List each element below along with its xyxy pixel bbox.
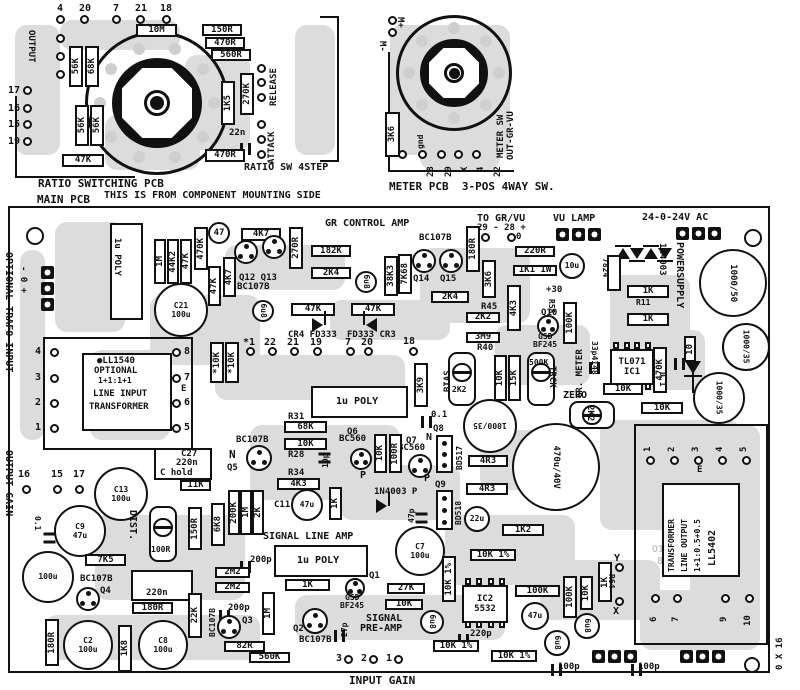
resistor-10: 10 xyxy=(684,336,696,362)
resistor-6k8: 6K8 xyxy=(211,503,225,546)
label-q8: Q8 xyxy=(433,425,444,434)
label-q1: Q1 xyxy=(369,572,380,581)
label-bc107b: BC107B xyxy=(299,636,332,645)
copper-pad xyxy=(480,35,492,47)
resistor-value: 56K xyxy=(78,117,87,133)
transistor-lead xyxy=(244,244,249,249)
copper-pad xyxy=(105,131,117,143)
zener-bar xyxy=(684,375,702,377)
diode-icon xyxy=(644,248,658,259)
connector xyxy=(592,650,637,663)
resistor-1m: 1M xyxy=(262,592,275,635)
resistor-44k2: 44K2 xyxy=(167,239,179,284)
label-q15: Q15 xyxy=(440,275,456,284)
diode-icon xyxy=(376,499,387,513)
capacitor-label: 1000/35 xyxy=(473,421,507,430)
solder-pad xyxy=(80,15,89,24)
solder-pad xyxy=(646,456,655,465)
caption-mounting-side: THIS IS FROM COMPONENT MOUNTING SIDE xyxy=(104,191,321,201)
caption-ratio-board: RATIO SWITCHING PCB xyxy=(38,178,164,189)
capacitor-100u: 100u xyxy=(22,551,74,603)
resistor-1k: 1K xyxy=(329,487,342,520)
copper-pad xyxy=(448,22,460,34)
label-dist: DIST. xyxy=(127,510,137,540)
label-r64: R64 xyxy=(607,574,615,588)
capacitor-1000-35: 1000/35 xyxy=(722,323,770,371)
caption-main-pcb: MAIN PCB xyxy=(37,194,90,205)
label-4: 4 xyxy=(57,4,63,14)
ic-pin xyxy=(634,342,640,349)
film-cap-icon xyxy=(416,513,428,524)
resistor-220r: 220R xyxy=(515,246,555,257)
solder-pad xyxy=(257,64,266,73)
ic-pin xyxy=(488,621,494,628)
resistor-value: 10K xyxy=(297,440,313,449)
resistor-100k: 100K xyxy=(563,302,577,344)
capacitor-label: C13100u xyxy=(111,485,130,503)
label-4: 4 xyxy=(35,347,41,357)
label-1: 1 xyxy=(386,654,392,664)
capacitor-6u8: 6u8 xyxy=(420,610,444,634)
label-release: RELEASE xyxy=(270,68,279,106)
solder-pad xyxy=(694,456,703,465)
resistor-value: 3K9 xyxy=(417,377,426,393)
resistor-value: 10 xyxy=(686,344,695,355)
connector-pin xyxy=(692,227,705,240)
solder-pad xyxy=(53,485,62,494)
silkscreen-line xyxy=(320,160,339,162)
label-bd518: BD518 xyxy=(455,501,463,525)
label-ratio-switch: RATIO SW 4STEP xyxy=(244,163,328,173)
capacitor-label: 6u8 xyxy=(427,615,436,629)
solder-pad xyxy=(172,348,181,357)
copper-pad xyxy=(197,131,209,143)
label-optional: OPTIONAL xyxy=(94,367,137,376)
resistor-value: 220R xyxy=(524,247,546,256)
connector xyxy=(676,227,721,240)
trimmer-slot xyxy=(155,526,170,529)
transistor-lead xyxy=(443,263,448,268)
copper-pad xyxy=(403,67,415,79)
transistor-lead xyxy=(238,254,243,259)
resistor-value: 22K xyxy=(191,607,200,623)
solder-pad xyxy=(721,594,730,603)
resistor-value: 1K5 xyxy=(224,95,233,111)
resistor-value: 100K xyxy=(566,312,575,334)
label-20: 20 xyxy=(79,4,91,14)
resistor-value: 27K xyxy=(398,584,414,593)
resistor-1k: 1K xyxy=(627,313,669,326)
connector xyxy=(680,650,725,663)
capacitor-6u8: 6u8 xyxy=(544,630,570,656)
label-30: +30 xyxy=(546,286,562,295)
resistor-value: 1K xyxy=(643,287,654,296)
label-bc560: BC560 xyxy=(398,444,425,453)
ic-pin xyxy=(499,578,505,585)
connector-pin xyxy=(708,227,721,240)
transistor xyxy=(302,608,328,634)
pcb-layout-image: MAIN PCB THIS IS FROM COMPONENT MOUNTING… xyxy=(0,0,800,690)
copper-trace xyxy=(295,25,335,155)
solder-pad xyxy=(369,655,378,664)
resistor-value: 6K8 xyxy=(214,516,223,532)
solder-pad xyxy=(162,15,171,24)
label-6: 6 xyxy=(650,617,659,622)
solder-pad xyxy=(136,15,145,24)
resistor-value: 4K3 xyxy=(510,300,519,316)
capacitor-22u: 22u xyxy=(464,506,490,532)
solder-pad xyxy=(50,348,59,357)
resistor-value: 47K xyxy=(210,278,219,294)
transistor-lead xyxy=(359,452,364,457)
resistor-value: 100K xyxy=(566,586,575,608)
capacitor-10u: 10u xyxy=(559,253,585,279)
capacitor-label: 6u8 xyxy=(582,619,591,633)
label-ll1540: ●LL1540 xyxy=(97,357,135,366)
capacitor-6u8: 6u8 xyxy=(252,300,274,322)
solder-pad xyxy=(651,594,660,603)
label-2: 2 xyxy=(668,447,677,452)
resistor-56k: 56K xyxy=(75,105,89,146)
solder-pad xyxy=(22,485,31,494)
resistor-value: 1M xyxy=(264,608,273,619)
resistor-10k-1: 10K 1% xyxy=(491,650,537,662)
label-19: 19 xyxy=(8,137,20,147)
solder-pad xyxy=(257,78,266,87)
solder-pad xyxy=(454,150,463,159)
solder-pad xyxy=(364,347,373,356)
capacitor-label: 1000/35 xyxy=(714,381,723,415)
label-q3: Q3 xyxy=(242,617,253,626)
resistor-100r: 100R xyxy=(389,434,402,473)
capacitor-label: C7100u xyxy=(410,542,429,560)
resistor-22k: 22K xyxy=(188,593,202,638)
ic-pin xyxy=(645,383,651,390)
transistor-lead xyxy=(80,601,85,606)
resistor-270r: 270R xyxy=(289,227,303,269)
label-200p: 200p xyxy=(250,556,272,565)
label-9: 9 xyxy=(720,617,729,622)
resistor-10k: 10K xyxy=(603,383,643,395)
resistor-value: 4K3 xyxy=(290,480,306,489)
label-c-hold: C hold xyxy=(160,469,193,478)
label-15: 15 xyxy=(51,470,63,480)
resistor-value: 47K xyxy=(305,305,321,314)
label-220n: 220n xyxy=(176,459,198,468)
resistor-27k: 27K xyxy=(387,583,425,594)
resistor-value: 100R xyxy=(391,443,400,465)
label-6: 6 xyxy=(184,398,190,408)
transistor-lead xyxy=(442,496,447,501)
diode-bar xyxy=(324,311,326,325)
resistor-value: 3M9 xyxy=(475,333,491,342)
label-1n4003-p: 1N4003 P xyxy=(374,488,417,497)
label-7: 7 xyxy=(672,617,681,622)
capacitor-1000-35: 1000/35 xyxy=(693,372,745,424)
resistor-56k: 56K xyxy=(90,105,104,146)
resistor-value: 470K xyxy=(197,238,206,260)
solder-pad xyxy=(56,34,65,43)
capacitor-1000-35: 1000/35 xyxy=(463,399,517,453)
label-bc560: BC560 xyxy=(339,435,366,444)
label-bd517: BD517 xyxy=(456,446,464,470)
ic-pin xyxy=(476,578,482,585)
label-bc107b: BC107B xyxy=(237,283,270,292)
resistor-value: 1K8 xyxy=(121,640,130,656)
label-2: 2 xyxy=(35,398,41,408)
resistor-value: 4R3 xyxy=(480,457,496,466)
solder-pad xyxy=(172,374,181,383)
label-10: 10 xyxy=(744,615,753,626)
resistor-1k: 1K xyxy=(627,285,669,298)
solder-pad xyxy=(507,233,516,242)
resistor-10k-1: 10K 1% xyxy=(470,549,516,561)
resistor-value: 180R xyxy=(469,238,478,260)
ic-pin xyxy=(613,342,619,349)
label-7: 7 xyxy=(184,373,190,383)
resistor-150r: 150R xyxy=(202,24,242,36)
transistor-lead xyxy=(313,613,318,618)
solder-pad xyxy=(257,93,266,102)
label-29: 29 xyxy=(445,166,454,177)
resistor-4r3: 4R3 xyxy=(468,455,508,467)
resistor-10k: 10K xyxy=(385,599,423,610)
label-1u-poly: 1u POLY xyxy=(112,238,121,276)
resistor-value: 180R xyxy=(48,632,57,654)
ic-pin xyxy=(624,342,630,349)
resistor-value: 47K xyxy=(182,253,191,269)
solder-pad xyxy=(23,120,32,129)
label-bc107b: BC107B xyxy=(419,234,452,243)
label-16: 16 xyxy=(18,470,30,480)
label-1-1-1-1: 1+1:1+1 xyxy=(98,377,132,385)
connector-pin xyxy=(41,282,54,295)
copper-pad xyxy=(493,67,505,79)
label-500k: 500K xyxy=(529,359,548,367)
resistor-2m2: 2M2 xyxy=(215,567,250,578)
solder-pad xyxy=(388,16,397,25)
film-cap-icon xyxy=(319,453,331,464)
transistor-lead xyxy=(251,460,256,465)
label-3: 3 xyxy=(336,654,342,664)
resistor-1m: 1M xyxy=(240,490,252,535)
connector xyxy=(41,266,54,311)
label-x: X xyxy=(461,167,470,172)
resistor-value: 1K xyxy=(302,581,313,590)
resistor-4k3: 4K3 xyxy=(507,285,521,331)
resistor-560k: 560K xyxy=(249,652,290,663)
resistor-11k: 11K xyxy=(180,480,211,491)
capacitor-label: 470u/40V xyxy=(551,445,561,488)
diode-bar xyxy=(629,260,645,262)
label-4: 4 xyxy=(477,167,486,172)
resistor-value: 10K xyxy=(496,370,505,386)
resistor-value: 100K xyxy=(527,587,549,596)
label-m: M- xyxy=(377,41,386,52)
label-q14: Q14 xyxy=(413,275,429,284)
diode-bar xyxy=(363,311,365,325)
resistor-value: 10K xyxy=(615,385,631,394)
resistor-value: 150R xyxy=(211,26,233,35)
resistor-value: 7K68 xyxy=(401,263,410,285)
label-c11: C11 xyxy=(274,501,290,510)
label-transformer: TRANSFORMER xyxy=(668,519,676,572)
label-17: 17 xyxy=(8,86,20,96)
label-22: 22 xyxy=(494,166,503,177)
capacitor-47: 47 xyxy=(208,222,230,244)
capacitor-c13: C13100u xyxy=(94,467,148,521)
label-powersupply: POWERSUPPLY xyxy=(674,242,684,308)
resistor-value: 3K6 xyxy=(388,126,397,142)
transistor-lead xyxy=(307,623,312,628)
label-n: N xyxy=(426,433,432,443)
label-200p: 200p xyxy=(228,604,250,613)
label-vu-lamp: VU LAMP xyxy=(553,214,595,224)
label-x: X xyxy=(613,607,619,617)
label-line-output: LINE OUTPUT xyxy=(681,519,689,572)
label-0-1: 0.1 xyxy=(658,372,666,386)
resistor-value: 44K2 xyxy=(169,251,178,273)
ic-pin xyxy=(465,621,471,628)
label-bc107b: BC107B xyxy=(209,608,217,637)
solder-pad xyxy=(398,150,407,159)
label-5: 5 xyxy=(740,447,749,452)
resistor-4k3: 4K3 xyxy=(277,478,320,490)
solder-pad xyxy=(23,104,32,113)
label-5: 5 xyxy=(184,423,190,433)
label-e: E xyxy=(697,466,702,475)
solder-pad xyxy=(50,374,59,383)
capacitor-c2: C2100u xyxy=(63,620,113,670)
resistor-value: 2K2 xyxy=(475,313,491,322)
label-r11: R11 xyxy=(636,299,650,307)
resistor-value: *10K xyxy=(228,352,237,374)
resistor-150r: 150R xyxy=(188,507,202,550)
transistor-lead xyxy=(442,463,447,468)
resistor-3m9: 3M9 xyxy=(466,332,500,343)
capacitor-label: 100u xyxy=(38,572,57,581)
label-18: 18 xyxy=(160,4,172,14)
resistor-value: 47K xyxy=(365,305,381,314)
resistor-value: 4K7 xyxy=(225,269,234,285)
copper-pad xyxy=(480,99,492,111)
label-optional-trafo-input: OPTIONAL TRAFO INPUT xyxy=(3,252,13,372)
silkscreen-line xyxy=(15,176,135,178)
label-output-gain: OUTPUT GAIN xyxy=(3,450,13,516)
resistor-value: 1K2 xyxy=(515,526,531,535)
resistor-10k-1: 10K 1% xyxy=(433,640,479,652)
solder-pad xyxy=(290,347,299,356)
transistor-lead xyxy=(454,263,459,268)
resistor-100k: 100K xyxy=(515,585,560,597)
resistor-47k: 47K xyxy=(291,303,335,316)
transistor-lead xyxy=(546,319,551,324)
capacitor-label: C8100u xyxy=(153,636,172,654)
connector-pin xyxy=(680,650,693,663)
label-2k2: 2K2 xyxy=(452,386,466,394)
resistor-15k: 15K xyxy=(508,355,521,401)
resistor-value: 2M2 xyxy=(224,568,240,577)
label-bias: BIAS xyxy=(444,370,453,392)
copper-pad xyxy=(208,97,220,109)
label-1: 1 xyxy=(35,423,41,433)
label-16: 16 xyxy=(8,104,20,114)
label-meter-sw: METER SW xyxy=(497,115,506,158)
solder-pad xyxy=(344,655,353,664)
resistor-10k-1: 10K 1% xyxy=(442,556,456,602)
resistor-68k: 68K xyxy=(85,46,99,87)
label-gnd: gnd xyxy=(417,135,425,149)
solder-pad xyxy=(673,594,682,603)
label-out-gr-vu: OUT-GR-VU xyxy=(507,111,516,160)
label-q9: Q9 xyxy=(435,481,446,490)
ic-label: IC1 xyxy=(624,367,640,377)
resistor-1k8: 1K8 xyxy=(118,625,132,672)
label-18: 18 xyxy=(403,337,415,347)
label-ll5402: LL5402 xyxy=(708,530,718,566)
resistor-100k: 100K xyxy=(563,576,577,618)
copper-trace xyxy=(15,25,60,155)
solder-pad xyxy=(50,424,59,433)
resistor-value: 150R xyxy=(191,518,200,540)
label-attack: ATTACK xyxy=(268,131,277,164)
resistor-7k68: 7K68 xyxy=(398,254,412,294)
label-1u-poly: 1u POLY xyxy=(297,556,339,566)
connector-pin xyxy=(676,227,689,240)
resistor-value: 1M xyxy=(242,507,251,518)
label-bc107b: BC107B xyxy=(236,436,269,445)
resistor-3k6: 3K6 xyxy=(385,112,400,157)
solder-pad xyxy=(670,456,679,465)
copper-pad xyxy=(448,112,460,124)
resistor-value: 2K4 xyxy=(442,293,458,302)
solder-pad xyxy=(418,150,427,159)
transistor-lead xyxy=(249,254,254,259)
resistor-1k: 1K xyxy=(285,579,330,591)
resistor-value: 270K xyxy=(243,83,252,105)
resistor-82r: 82R xyxy=(224,641,265,652)
resistor-value: *10K xyxy=(213,352,222,374)
label-line-input: LINE INPUT xyxy=(93,390,147,399)
label-1n4003: 1N4003 xyxy=(657,243,666,276)
label-bc107b: BC107B xyxy=(80,575,113,584)
transistor-lead xyxy=(416,263,421,268)
transistor-lead xyxy=(423,468,428,473)
resistor-4r3: 4R3 xyxy=(466,483,508,495)
diode-icon xyxy=(630,248,644,259)
resistor-10k: *10K xyxy=(210,342,224,383)
solder-pad xyxy=(615,597,624,606)
resistor-182k: 182K xyxy=(311,245,351,257)
label-gr-control-amp: GR CONTROL AMP xyxy=(325,219,409,229)
label-100p: 100p xyxy=(638,663,660,672)
solder-pad xyxy=(346,347,355,356)
resistor-10m: 10M xyxy=(136,24,177,37)
solder-pad xyxy=(56,70,65,79)
resistor-10k: 10K xyxy=(374,434,387,473)
resistor-1m: 1M xyxy=(154,239,166,284)
capacitor-6u8: 6u8 xyxy=(574,613,600,639)
resistor-value: 200K xyxy=(230,502,239,524)
solder-pad xyxy=(257,120,266,129)
solder-pad xyxy=(50,399,59,408)
label-0-1: 0.1 xyxy=(33,516,41,530)
label-220p: 220p xyxy=(470,630,492,639)
capacitor-label: 6u8 xyxy=(258,304,267,318)
resistor-1k2: 1K2 xyxy=(502,524,544,536)
ic-pin xyxy=(465,578,471,585)
film-cap-icon xyxy=(334,630,345,642)
